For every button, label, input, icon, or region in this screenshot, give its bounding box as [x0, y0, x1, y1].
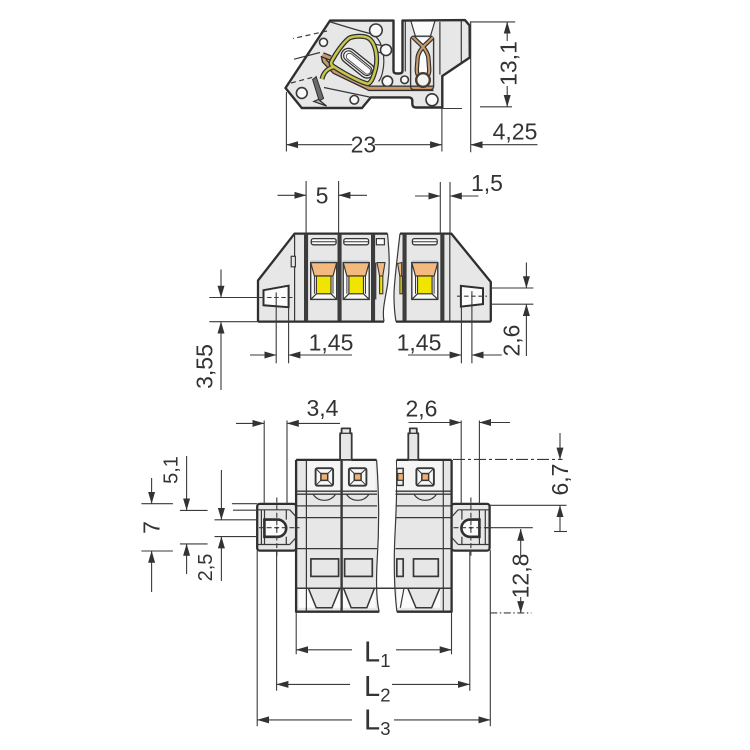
svg-text:L: L [364, 671, 380, 703]
svg-text:1,45: 1,45 [309, 330, 354, 356]
svg-text:5,1: 5,1 [161, 456, 183, 484]
svg-text:2,6: 2,6 [406, 396, 438, 422]
svg-text:2,5: 2,5 [195, 554, 217, 582]
svg-text:12,8: 12,8 [508, 554, 534, 599]
svg-text:1,5: 1,5 [471, 170, 503, 196]
svg-text:6,7: 6,7 [547, 464, 573, 496]
svg-text:5: 5 [316, 183, 329, 209]
svg-text:3,55: 3,55 [192, 344, 218, 389]
svg-text:3,4: 3,4 [307, 395, 339, 421]
svg-text:13,1: 13,1 [496, 41, 522, 86]
svg-text:23: 23 [351, 132, 377, 158]
svg-text:1,45: 1,45 [397, 330, 442, 356]
svg-text:2: 2 [380, 684, 390, 705]
svg-text:1: 1 [380, 650, 390, 671]
svg-text:3: 3 [380, 718, 390, 739]
svg-text:2,6: 2,6 [499, 325, 525, 357]
svg-text:7: 7 [139, 521, 165, 534]
svg-text:L: L [364, 705, 380, 737]
svg-text:4,25: 4,25 [493, 119, 538, 145]
svg-text:L: L [364, 636, 380, 668]
